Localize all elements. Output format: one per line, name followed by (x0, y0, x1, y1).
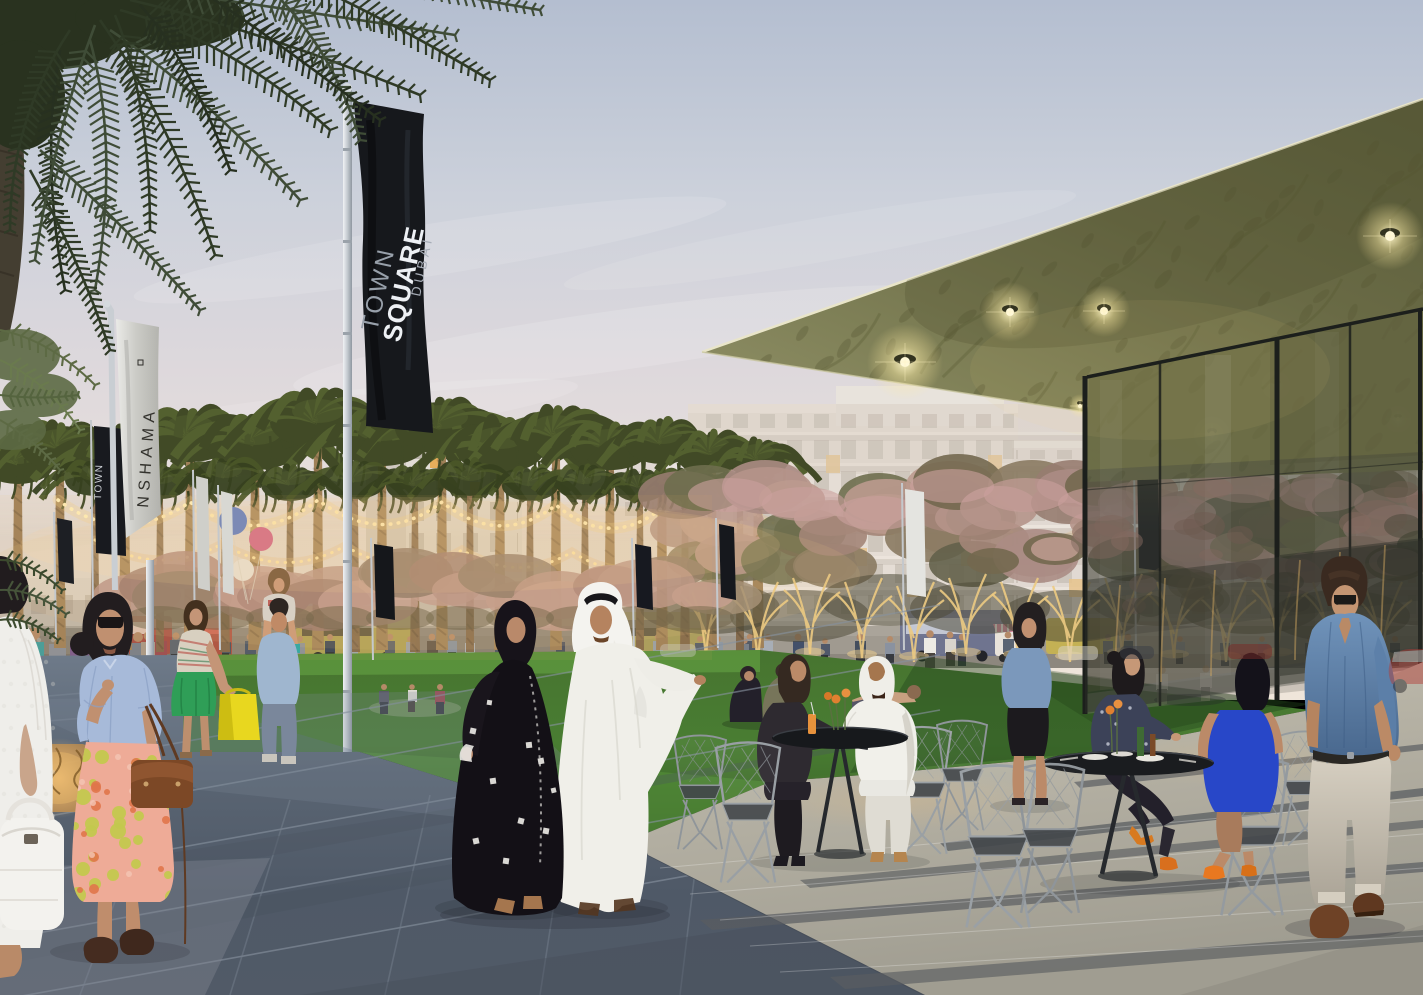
svg-text:TOWN: TOWN (93, 463, 105, 500)
